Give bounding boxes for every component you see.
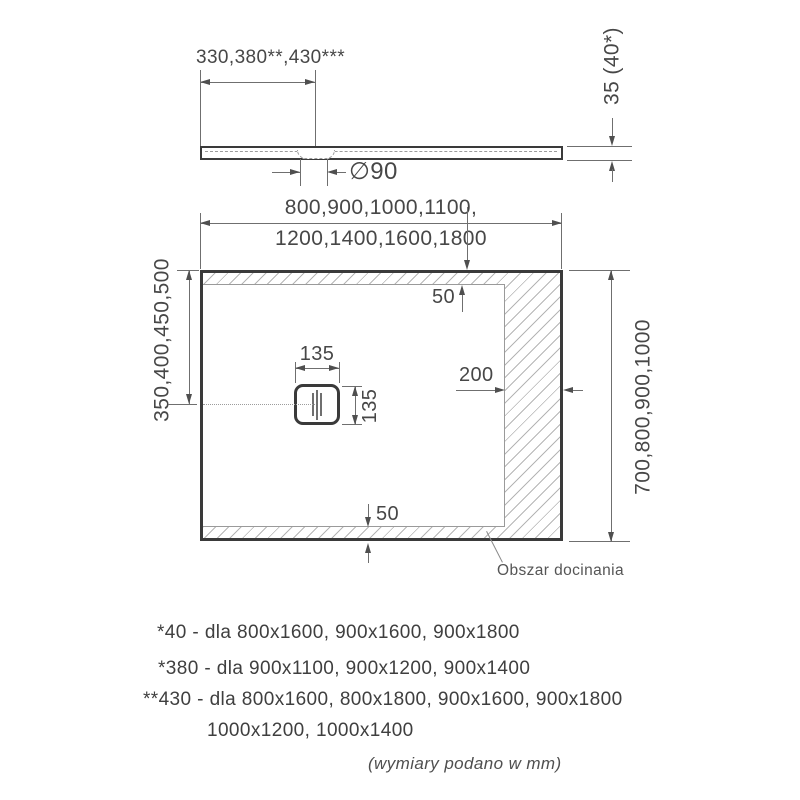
extension-line [200, 70, 201, 146]
arrowhead-down-icon [352, 415, 358, 425]
arrowhead-up-icon [365, 543, 371, 553]
arrowhead-down-icon [365, 517, 371, 527]
arrowhead-left-icon [563, 387, 573, 393]
arrowhead-right-icon [290, 169, 300, 175]
dimension-tail-line [337, 172, 346, 173]
arrowhead-right-icon [495, 387, 505, 393]
dimension-tail-line [368, 553, 369, 563]
tray-thickness-label: 35 (40*) [602, 27, 623, 105]
drain-slot [316, 390, 318, 420]
arrowhead-left-icon [295, 365, 305, 371]
arrowhead-left-icon [327, 169, 337, 175]
tray-width-label-line2: 1200,1400,1600,1800 [200, 228, 562, 249]
arrowhead-left-icon [200, 220, 210, 226]
arrowhead-up-icon [608, 270, 614, 280]
extension-line [569, 541, 630, 542]
width-dimension-line [200, 223, 562, 224]
drain-slot [320, 393, 322, 416]
drain-center-from-edge-label: 350,400,450,500 [152, 258, 173, 422]
arrowhead-right-icon [305, 79, 315, 85]
dimension-line [189, 270, 190, 404]
dimension-tail-line [612, 169, 613, 182]
extension-line [569, 270, 630, 271]
footnote-430-continued: 1000x1200, 1000x1400 [207, 720, 414, 742]
extension-line [339, 362, 340, 383]
extension-line [567, 146, 632, 147]
footnote-380: *380 - dla 900x1100, 900x1200, 900x1400 [158, 658, 530, 680]
dimension-line [611, 270, 612, 542]
arrowhead-right-icon [329, 365, 339, 371]
arrowhead-down-icon [186, 394, 192, 404]
arrowhead-down-icon [464, 260, 470, 270]
footnote-40: *40 - dla 800x1600, 900x1600, 900x1800 [157, 622, 520, 644]
extension-line [168, 404, 197, 405]
top-margin-label: 50 [432, 287, 455, 307]
bottom-margin-label: 50 [376, 504, 399, 524]
arrowhead-up-icon [352, 386, 358, 396]
dimension-tail-line [456, 390, 496, 391]
arrowhead-left-icon [200, 79, 210, 85]
dimension-tail-line [612, 118, 613, 138]
dimension-tail-line [368, 504, 369, 518]
drain-diameter-label: ∅90 [349, 160, 398, 184]
arrowhead-down-icon [609, 136, 615, 146]
drain-height-label: 135 [360, 389, 380, 424]
extension-line-drain-center [315, 70, 316, 152]
tray-usable-area [203, 284, 505, 527]
drain-recess-dashed-outline [297, 150, 335, 159]
dimension-tail-line [467, 207, 468, 260]
arrowhead-up-icon [459, 285, 465, 295]
tray-height-label: 700,800,900,1000 [633, 319, 654, 495]
dimension-tail-line [462, 295, 463, 312]
arrowhead-right-icon [552, 220, 562, 226]
extension-line [300, 159, 301, 186]
units-note: (wymiary podano w mm) [368, 754, 562, 774]
arrowhead-down-icon [608, 532, 614, 542]
drain-centerline-dotted [203, 404, 315, 405]
right-margin-label: 200 [459, 365, 494, 385]
footnote-430: **430 - dla 800x1600, 800x1800, 900x1600… [143, 689, 623, 711]
tray-surface-dashed-line [205, 151, 557, 152]
drain-offset-dimension-label: 330,380**,430*** [196, 48, 345, 67]
technical-drawing-shower-tray: 330,380**,430*** ∅90 35 (40*) 800,900,10… [0, 0, 800, 800]
drain-width-label: 135 [294, 344, 340, 364]
drain-offset-dimension-line [200, 82, 315, 83]
dimension-tail-line [573, 390, 583, 391]
trim-area-label: Obszar docinania [497, 563, 624, 579]
arrowhead-up-icon [186, 270, 192, 280]
extension-line [567, 160, 632, 161]
tray-width-label-line1: 800,900,1000,1100, [200, 197, 562, 218]
